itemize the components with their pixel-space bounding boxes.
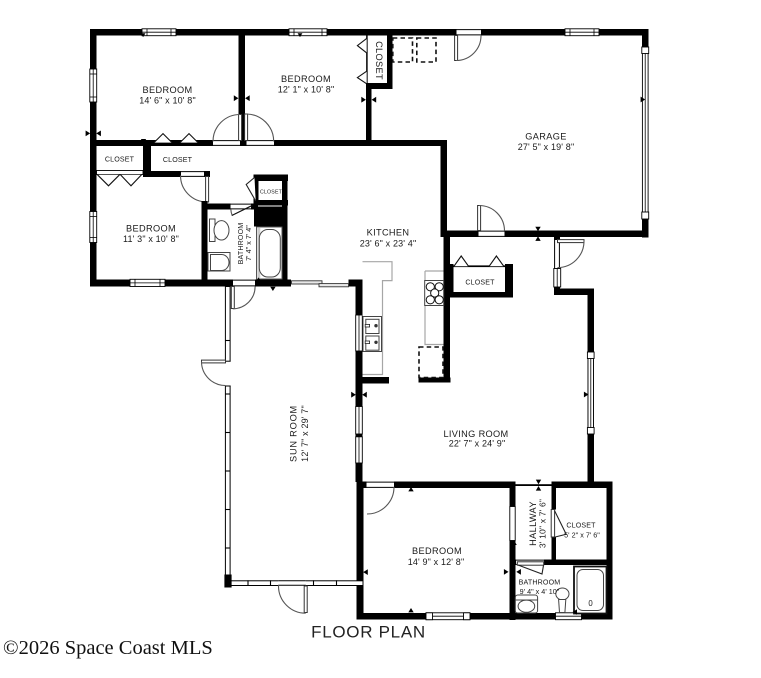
svg-text:BEDROOM: BEDROOM <box>281 74 331 84</box>
svg-text:0: 0 <box>588 599 593 608</box>
svg-text:BEDROOM: BEDROOM <box>126 224 176 234</box>
svg-text:LIVING ROOM: LIVING ROOM <box>443 429 508 439</box>
svg-text:23' 6" x 23' 4": 23' 6" x 23' 4" <box>360 239 417 249</box>
svg-text:KITCHEN: KITCHEN <box>367 228 410 238</box>
svg-text:CLOSET: CLOSET <box>163 156 193 164</box>
svg-text:SUN ROOM: SUN ROOM <box>289 405 299 462</box>
svg-text:CLOSET: CLOSET <box>260 190 283 196</box>
svg-text:CLOSET: CLOSET <box>566 522 596 530</box>
svg-text:14' 9" x 12' 8": 14' 9" x 12' 8" <box>408 557 465 567</box>
svg-text:FLOOR PLAN: FLOOR PLAN <box>311 623 426 642</box>
svg-text:7' 4" x 7' 4": 7' 4" x 7' 4" <box>244 225 253 261</box>
svg-text:BATHROOM: BATHROOM <box>519 579 561 587</box>
svg-text:BEDROOM: BEDROOM <box>412 546 462 556</box>
svg-text:HALLWAY: HALLWAY <box>528 501 538 546</box>
svg-text:14' 6" x 10' 8": 14' 6" x 10' 8" <box>139 96 196 106</box>
svg-text:12' 1" x 10' 8": 12' 1" x 10' 8" <box>278 85 335 95</box>
svg-text:CLOSET: CLOSET <box>105 156 135 164</box>
svg-text:9' 4" x 4' 10": 9' 4" x 4' 10" <box>520 587 560 596</box>
svg-text:27' 5" x 19' 8": 27' 5" x 19' 8" <box>518 142 575 152</box>
svg-text:©2026 Space Coast MLS: ©2026 Space Coast MLS <box>3 637 213 659</box>
svg-text:5' 2" x 7' 6": 5' 2" x 7' 6" <box>564 531 600 540</box>
svg-text:CLOSET: CLOSET <box>374 41 384 80</box>
svg-text:BEDROOM: BEDROOM <box>143 85 193 95</box>
svg-text:GARAGE: GARAGE <box>525 132 566 142</box>
svg-text:11' 3" x 10' 8": 11' 3" x 10' 8" <box>123 234 179 244</box>
svg-text:3' 10" x 7' 6": 3' 10" x 7' 6" <box>538 499 548 548</box>
svg-text:CLOSET: CLOSET <box>465 279 495 287</box>
svg-text:22' 7" x 24' 9": 22' 7" x 24' 9" <box>449 439 506 449</box>
svg-text:12' 7" x 29' 7": 12' 7" x 29' 7" <box>300 405 310 462</box>
